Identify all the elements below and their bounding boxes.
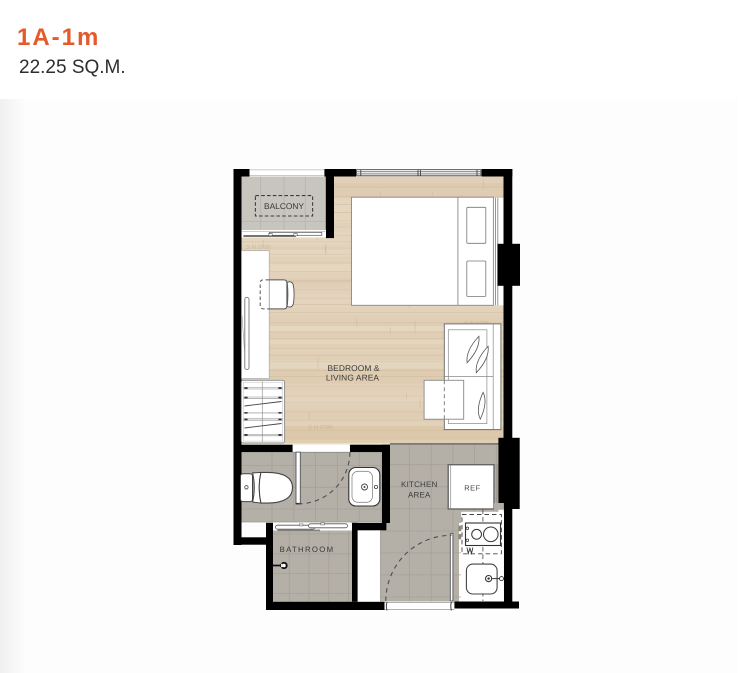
svg-text:AREA: AREA	[408, 491, 431, 500]
svg-text:S N 0786: S N 0786	[308, 424, 334, 431]
svg-text:LIVING AREA: LIVING AREA	[326, 372, 380, 382]
svg-text:S N 0786: S N 0786	[246, 244, 272, 251]
svg-text:BATHROOM: BATHROOM	[280, 545, 335, 554]
svg-text:REF: REF	[464, 484, 481, 493]
svg-text:BALCONY: BALCONY	[264, 201, 304, 211]
svg-text:BEDROOM &: BEDROOM &	[327, 363, 379, 373]
svg-text:KITCHEN: KITCHEN	[401, 480, 438, 489]
